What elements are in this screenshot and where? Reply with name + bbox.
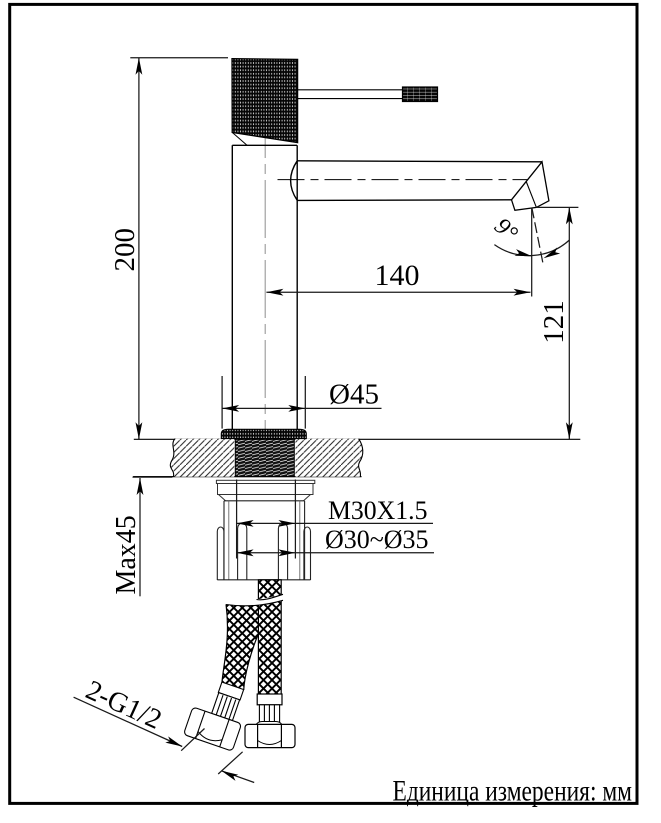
svg-text:140: 140 bbox=[375, 259, 420, 292]
svg-text:Единица измерения: мм: Единица измерения: мм bbox=[393, 775, 633, 807]
svg-text:Ø45: Ø45 bbox=[329, 379, 379, 411]
svg-text:Max45: Max45 bbox=[111, 515, 142, 594]
svg-text:121: 121 bbox=[538, 300, 570, 344]
svg-text:200: 200 bbox=[109, 228, 141, 272]
svg-text:Ø30~Ø35: Ø30~Ø35 bbox=[325, 525, 429, 554]
svg-text:M30X1.5: M30X1.5 bbox=[328, 496, 428, 525]
